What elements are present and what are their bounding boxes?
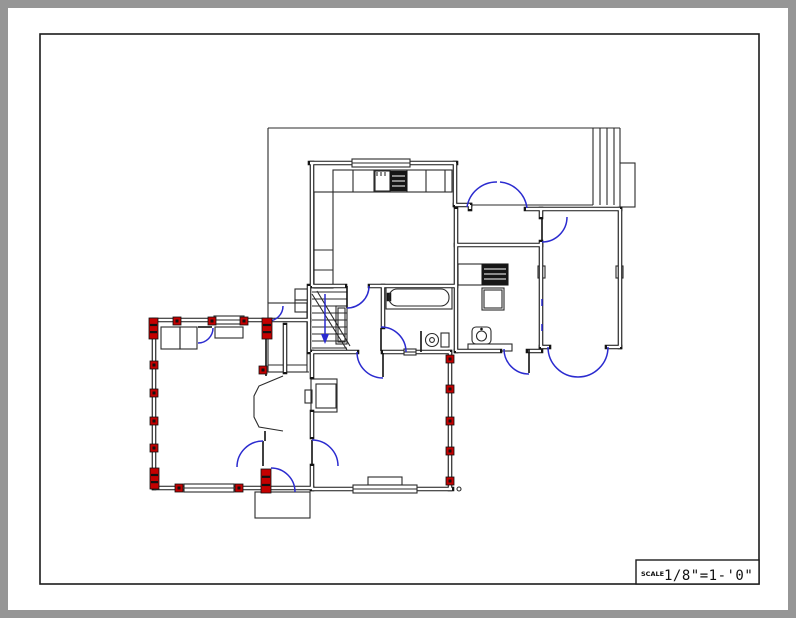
cad-canvas[interactable]: SCALE 1/8"=1-'0" bbox=[0, 0, 796, 618]
cad-print-preview: SCALE 1/8"=1-'0" bbox=[0, 0, 796, 618]
scale-box: SCALE 1/8"=1-'0" bbox=[636, 560, 759, 584]
scale-label: SCALE bbox=[641, 570, 664, 578]
scale-value: 1/8"=1-'0" bbox=[664, 568, 753, 584]
floor-plan bbox=[149, 128, 635, 518]
